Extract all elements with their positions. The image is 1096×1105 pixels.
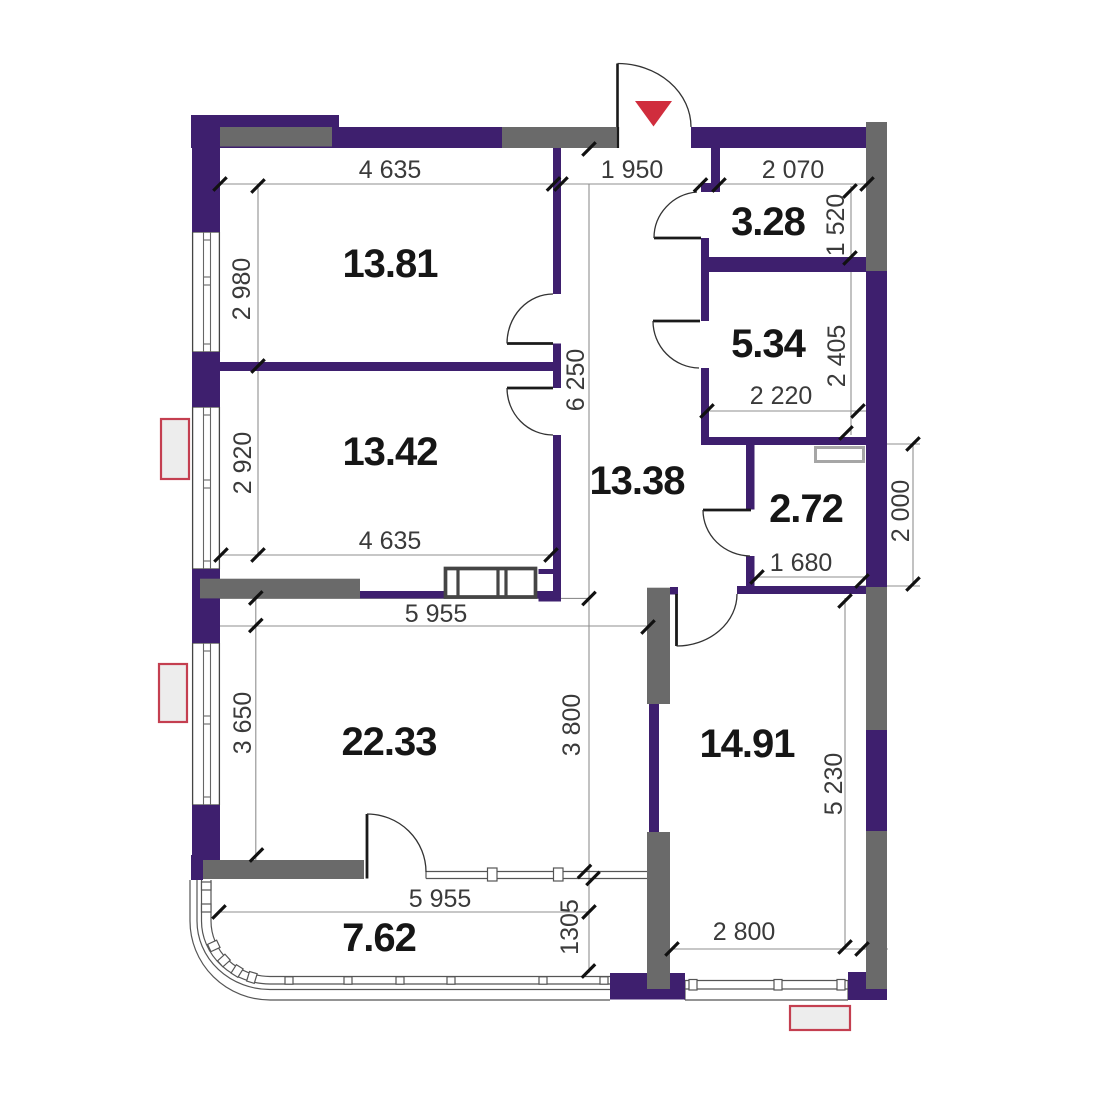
- svg-text:14.91: 14.91: [699, 722, 795, 766]
- svg-text:1305: 1305: [556, 899, 584, 955]
- svg-text:5 955: 5 955: [405, 600, 468, 628]
- svg-text:2 070: 2 070: [762, 156, 825, 184]
- svg-text:13.38: 13.38: [589, 459, 685, 503]
- svg-text:2 220: 2 220: [750, 382, 813, 410]
- svg-text:5 230: 5 230: [820, 753, 848, 816]
- svg-text:3 650: 3 650: [229, 692, 257, 755]
- svg-text:4 635: 4 635: [359, 156, 422, 184]
- svg-text:13.42: 13.42: [342, 430, 437, 474]
- svg-text:2 920: 2 920: [229, 432, 257, 495]
- svg-text:1 950: 1 950: [601, 156, 664, 184]
- svg-text:1 680: 1 680: [770, 549, 833, 577]
- svg-text:2 405: 2 405: [823, 325, 851, 388]
- svg-text:5.34: 5.34: [731, 322, 807, 366]
- svg-text:5 955: 5 955: [409, 885, 472, 913]
- svg-text:6 250: 6 250: [562, 349, 590, 412]
- svg-text:2 000: 2 000: [887, 480, 915, 543]
- svg-text:4 635: 4 635: [359, 527, 422, 555]
- svg-text:1 520: 1 520: [822, 194, 850, 257]
- svg-text:13.81: 13.81: [342, 242, 438, 286]
- svg-text:2.72: 2.72: [769, 487, 843, 531]
- svg-text:3.28: 3.28: [731, 200, 806, 244]
- svg-text:7.62: 7.62: [342, 916, 416, 960]
- svg-text:2 800: 2 800: [713, 918, 776, 946]
- svg-text:2 980: 2 980: [228, 258, 256, 321]
- svg-text:3 800: 3 800: [558, 694, 586, 757]
- svg-text:22.33: 22.33: [341, 720, 436, 764]
